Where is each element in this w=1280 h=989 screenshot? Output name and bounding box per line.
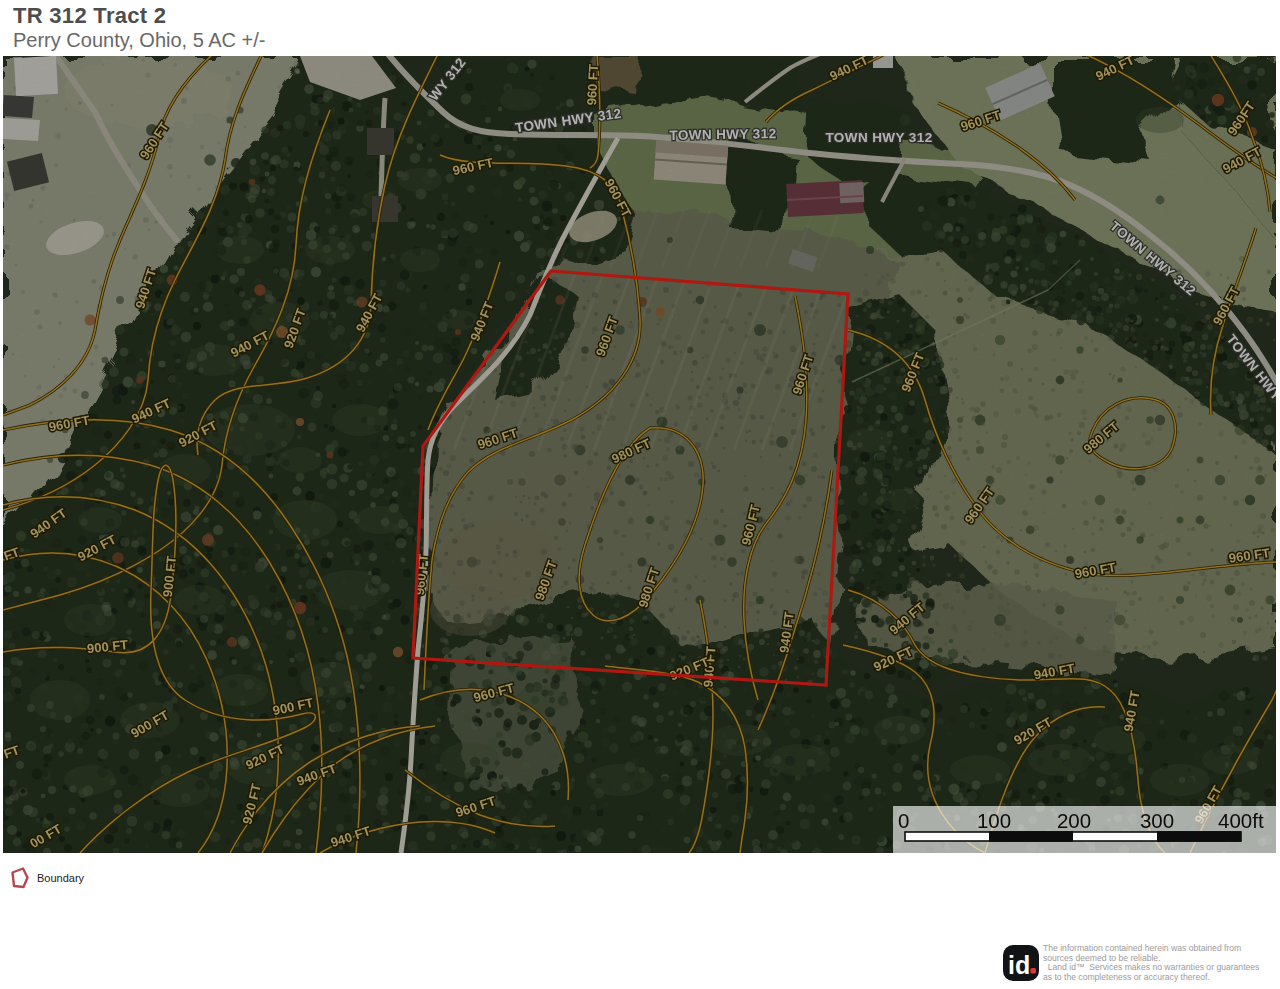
svg-text:id: id [1008,951,1030,979]
svg-text:400ft: 400ft [1218,809,1264,832]
svg-text:300: 300 [1140,809,1174,832]
svg-text:0: 0 [898,809,909,832]
svg-text:100: 100 [977,809,1011,832]
svg-text:200: 200 [1057,809,1091,832]
